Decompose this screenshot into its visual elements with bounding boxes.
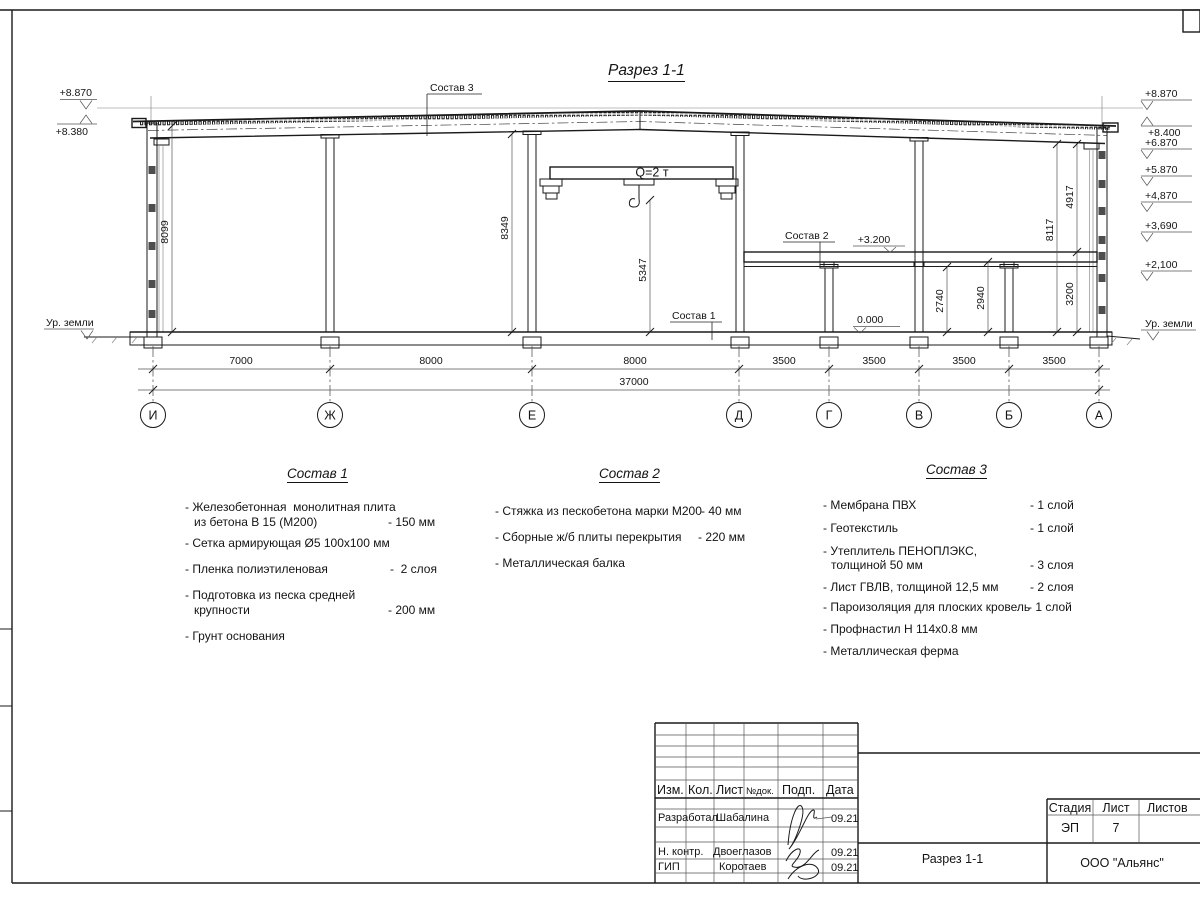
tb-row0-date: 09.21 bbox=[831, 814, 859, 825]
tb-sheet-header: Лист bbox=[1093, 802, 1139, 815]
sostav3-item-2-line2: толщиной 50 мм bbox=[831, 559, 923, 571]
tb-doc-title: Разрез 1-1 bbox=[858, 853, 1047, 866]
sostav3-item-3-value: - 2 слоя bbox=[1030, 581, 1074, 593]
tb-row2-name: Коротаев bbox=[719, 862, 767, 873]
vdim-beam: 2740 bbox=[934, 289, 946, 313]
leader-sostav2-label: Состав 2 bbox=[785, 230, 829, 242]
corner-box bbox=[1183, 10, 1200, 32]
zero-level-label: 0.000 bbox=[857, 314, 883, 326]
crane-capacity-label: Q=2 т bbox=[635, 166, 668, 180]
wall-left-column-capital bbox=[154, 139, 169, 145]
sostav1-item-4-line1: - Грунт основания bbox=[185, 630, 285, 642]
hdim-0: 7000 bbox=[229, 355, 253, 367]
section-drawing: Q=2 т Состав 3 Состав 2 Состав 1 +8.870 … bbox=[0, 0, 1200, 900]
roof bbox=[97, 96, 1143, 144]
hdim-3: 3500 bbox=[772, 355, 796, 367]
tb-row1-role: Н. контр. bbox=[658, 847, 703, 858]
tb-row0-role: Разработал bbox=[658, 813, 718, 824]
elev-right-2: +6.870 bbox=[1145, 137, 1178, 149]
tb-row2-role: ГИП bbox=[658, 862, 680, 873]
elevation-marks-right: +8.870 +8.400 +6.870 +5.870 +4,870 +3,69… bbox=[1141, 88, 1196, 340]
tb-stage-header: Стадия bbox=[1047, 802, 1093, 815]
sostav1-item-0-line1: - Железобетонная монолитная плита bbox=[185, 501, 396, 513]
ground-level-label-right: Ур. земли bbox=[1145, 318, 1193, 330]
sostav1-item-0-value: - 150 мм bbox=[388, 516, 435, 528]
sostav3-item-1-line1: - Геотекстиль bbox=[823, 522, 898, 534]
elev-right-5: +3,690 bbox=[1145, 220, 1178, 232]
leader-sostav1-label: Состав 1 bbox=[672, 310, 716, 322]
crane-trolley bbox=[624, 179, 654, 185]
sostav1-title: Состав 1 bbox=[287, 467, 348, 483]
sostav3-item-3-line1: - Лист ГВЛВ, толщиной 12,5 мм bbox=[823, 581, 999, 593]
elev-right-0: +8.870 bbox=[1145, 88, 1178, 100]
hdim-4: 3500 bbox=[862, 355, 886, 367]
sostav3-item-4-value: - 1 слой bbox=[1028, 601, 1072, 613]
elevation-marks-left: +8.870 +8.380 Ур. земли bbox=[44, 87, 97, 339]
vdim-wall-left: 8099 bbox=[159, 220, 171, 244]
ground-level-label-left: Ур. земли bbox=[46, 317, 94, 329]
wall-left bbox=[147, 123, 157, 337]
tb-company: ООО "Альянс" bbox=[1047, 857, 1197, 870]
drawing-sheet: Q=2 т Состав 3 Состав 2 Состав 1 +8.870 … bbox=[0, 0, 1200, 900]
tb-col-list: Лист bbox=[716, 784, 743, 797]
truss-bottom-chord bbox=[150, 130, 1105, 144]
sostav2-title: Состав 2 bbox=[599, 467, 660, 483]
vdim-hall: 8349 bbox=[499, 216, 511, 240]
vdim-slab: 2940 bbox=[975, 286, 987, 310]
sostav3-item-0-line1: - Мембрана ПВХ bbox=[823, 499, 916, 511]
axis-label-0: И bbox=[149, 409, 158, 423]
hdim-5: 3500 bbox=[952, 355, 976, 367]
sostav3-item-6-line1: - Металлическая ферма bbox=[823, 645, 959, 657]
crane-beam: Q=2 т bbox=[540, 166, 738, 208]
axis-label-6: Б bbox=[1005, 409, 1013, 423]
sostav2-item-2-line1: - Металлическая балка bbox=[495, 557, 625, 569]
elev-left-top: +8.870 bbox=[60, 87, 93, 99]
ground-floor bbox=[84, 332, 1140, 348]
tb-stage-value: ЭП bbox=[1047, 822, 1093, 835]
sostav3-title: Состав 3 bbox=[926, 463, 987, 479]
tb-row1-date: 09.21 bbox=[831, 848, 859, 859]
tb-row2-date: 09.21 bbox=[831, 863, 859, 874]
axis-label-7: А bbox=[1095, 409, 1104, 423]
tb-sheets-header: Листов bbox=[1147, 802, 1188, 815]
tb-col-ndok: №док. bbox=[746, 787, 774, 797]
tb-col-podp: Подп. bbox=[782, 784, 815, 797]
axis-label-5: В bbox=[915, 409, 923, 423]
tb-col-date: Дата bbox=[826, 784, 854, 797]
sostav2-item-0-value: - 40 мм bbox=[701, 505, 742, 517]
axis-label-4: Г bbox=[826, 409, 833, 423]
signature-2 bbox=[786, 849, 819, 879]
sostav1-item-0-line2: из бетона В 15 (М200) bbox=[194, 516, 317, 528]
vdim-crane-hook: 5347 bbox=[637, 258, 649, 282]
sostav2-item-1-line1: - Сборные ж/б плиты перекрытия bbox=[495, 531, 681, 543]
mezzanine bbox=[744, 252, 1097, 267]
sostav2-item-1-value: - 220 мм bbox=[698, 531, 745, 543]
sostav2-item-0-line1: - Стяжка из пескобетона марки М200 bbox=[495, 505, 702, 517]
leaders: Состав 3 Состав 2 Состав 1 bbox=[427, 82, 835, 340]
tb-sheet-value: 7 bbox=[1093, 822, 1139, 835]
hdim-1: 8000 bbox=[419, 355, 443, 367]
sostav1-item-3-line2: крупности bbox=[194, 604, 250, 616]
sostav1-item-1-line1: - Сетка армирующая Ø5 100х100 мм bbox=[185, 537, 390, 549]
elev-right-6: +2,100 bbox=[1145, 259, 1178, 271]
elev-left-eave: +8.380 bbox=[56, 126, 89, 138]
sostav3-item-4-line1: - Пароизоляция для плоских кровель bbox=[823, 601, 1030, 613]
sostav3-item-2-line1: - Утеплитель ПЕНОПЛЭКС, bbox=[823, 545, 977, 557]
sostav1-item-3-line1: - Подготовка из песка средней bbox=[185, 589, 355, 601]
sostav1-item-2-line1: - Пленка полиэтиленовая bbox=[185, 563, 328, 575]
level-marks: +3.200 0.000 bbox=[853, 234, 905, 333]
leader-sostav3-label: Состав 3 bbox=[430, 82, 474, 94]
hdim-6: 3500 bbox=[1042, 355, 1066, 367]
walls bbox=[147, 123, 1107, 337]
sostav1-item-2-value: - 2 слоя bbox=[390, 563, 437, 575]
vertical-dimensions: 8099 8349 5347 8117 4917 3200 2940 2740 bbox=[159, 122, 1081, 336]
vdim-upper-right: 4917 bbox=[1064, 185, 1076, 209]
elev-right-4: +4,870 bbox=[1145, 190, 1178, 202]
axis-label-2: Е bbox=[528, 409, 536, 423]
tb-row1-name: Двоеглазов bbox=[713, 847, 771, 858]
mezzanine-slab bbox=[744, 252, 1097, 262]
footing bbox=[731, 337, 749, 348]
section-title: Разрез 1-1 bbox=[608, 63, 685, 82]
axis-label-1: Ж bbox=[324, 409, 336, 423]
axis-label-3: Д bbox=[735, 409, 744, 423]
sostav3-item-2-value: - 3 слоя bbox=[1030, 559, 1074, 571]
vdim-mezz-height: 3200 bbox=[1064, 282, 1076, 306]
tb-col-kol: Кол. bbox=[688, 784, 713, 797]
sostav3-item-5-line1: - Профнастил Н 114х0.8 мм bbox=[823, 623, 978, 635]
sostav3-item-1-value: - 1 слой bbox=[1030, 522, 1074, 534]
sostav3-item-0-value: - 1 слой bbox=[1030, 499, 1074, 511]
axis-dimensions: 7000 8000 8000 3500 3500 3500 3500 37000… bbox=[138, 346, 1112, 428]
vdim-full-right: 8117 bbox=[1044, 219, 1056, 242]
tb-row0-name: Шабалина bbox=[716, 813, 769, 824]
hdim-total: 37000 bbox=[619, 376, 648, 388]
wall-right bbox=[1097, 128, 1107, 337]
crane-hook-icon bbox=[629, 199, 639, 207]
columns bbox=[321, 131, 1018, 332]
sostav1-item-3-value: - 200 мм bbox=[388, 604, 435, 616]
hdim-2: 8000 bbox=[623, 355, 647, 367]
tb-col-izm: Изм. bbox=[657, 784, 684, 797]
axis-bubbles: И Ж Е Д Г В Б А bbox=[141, 403, 1112, 428]
mezz-level-label: +3.200 bbox=[858, 234, 891, 246]
elev-right-3: +5.870 bbox=[1145, 164, 1178, 176]
